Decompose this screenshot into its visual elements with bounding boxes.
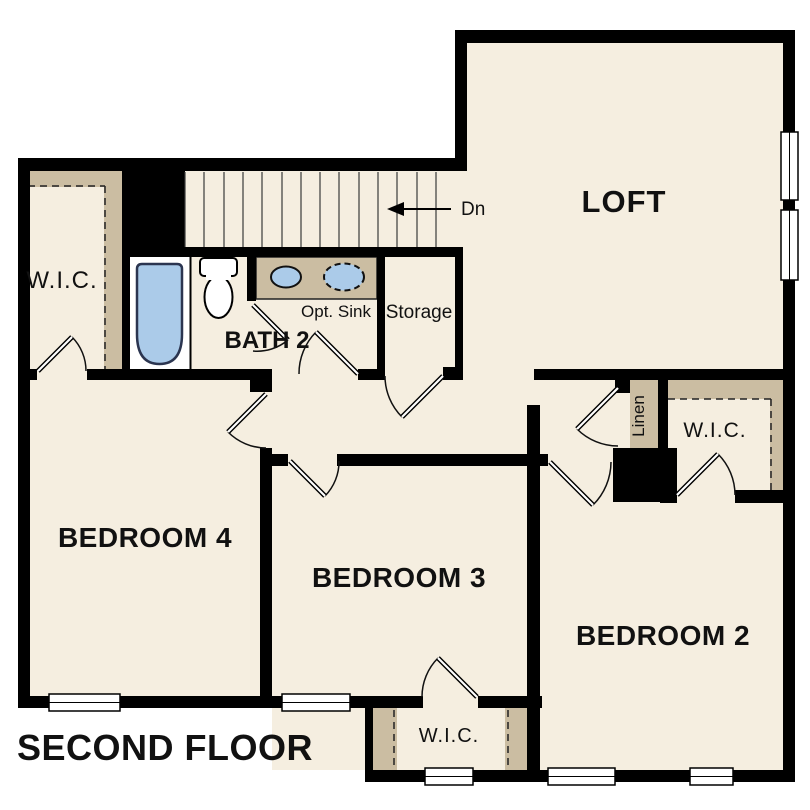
opt-sink-label: Opt. Sink <box>301 302 371 321</box>
bathtub-icon <box>137 264 182 364</box>
wic-bedroom3-label: W.I.C. <box>419 725 479 747</box>
wic-bedroom4-label: W.I.C. <box>26 267 97 294</box>
wic2-attic-band-right <box>770 399 783 492</box>
stairs-dn-label: Dn <box>461 199 485 220</box>
window-loft-lower <box>781 210 798 280</box>
bedroom4-label: BEDROOM 4 <box>58 522 232 553</box>
window-loft-upper <box>781 132 798 200</box>
window-bedroom4 <box>49 694 120 711</box>
wic2-attic-band-top <box>668 380 783 399</box>
floor-areas <box>18 30 795 782</box>
page-title: SECOND FLOOR <box>17 727 313 768</box>
stairwell-void <box>122 158 185 257</box>
sink-icon <box>271 267 301 288</box>
floor-plan-page: W.I.C. BATH 2 Opt. Sink Storage Dn LOFT … <box>0 0 810 810</box>
bedroom3-label: BEDROOM 3 <box>312 562 486 593</box>
storage-label: Storage <box>386 302 453 323</box>
wic-bedroom2-label: W.I.C. <box>683 419 746 442</box>
window-bedroom3 <box>282 694 350 711</box>
optional-sink-icon <box>324 264 364 291</box>
window-bedroom2-right <box>690 768 733 785</box>
wic4-attic-band-top <box>28 169 122 187</box>
bath2-label: BATH 2 <box>225 327 310 354</box>
window-wic3 <box>425 768 473 785</box>
loft-label: LOFT <box>582 184 667 219</box>
wic4-attic-band-right <box>104 186 122 372</box>
floor-plan-drawing: W.I.C. BATH 2 Opt. Sink Storage Dn LOFT … <box>0 0 810 810</box>
bedroom2-label: BEDROOM 2 <box>576 620 750 651</box>
window-bedroom2-left <box>548 768 615 785</box>
linen-label: Linen <box>629 395 648 437</box>
